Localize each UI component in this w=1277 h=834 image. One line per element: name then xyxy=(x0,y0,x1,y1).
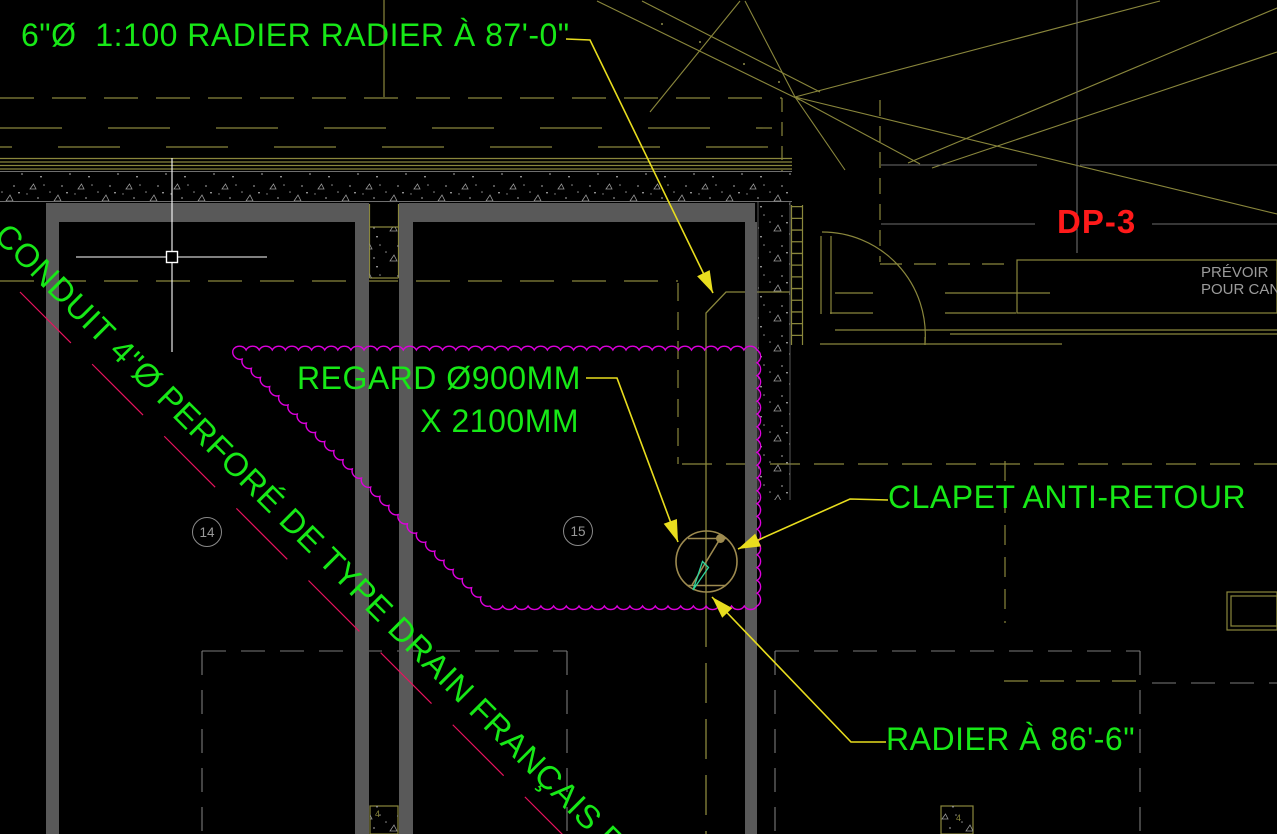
pickbox-icon xyxy=(167,252,178,263)
door-swing-arc xyxy=(822,232,925,343)
valve-hinge-dot xyxy=(716,534,725,543)
leader-radier xyxy=(712,597,886,742)
fixture-outline xyxy=(1227,592,1277,630)
grid-bubble-14[interactable]: 14 xyxy=(192,517,222,547)
wall-fills xyxy=(46,203,757,834)
radier-annotation[interactable]: RADIER À 86'-6" xyxy=(886,720,1135,758)
grid-bubble-15-label: 15 xyxy=(570,524,585,539)
regard-annotation[interactable]: REGARD Ø900MMX 2100MM xyxy=(297,357,579,443)
clapet-annotation[interactable]: CLAPET ANTI-RETOUR xyxy=(888,478,1246,516)
leader-lines[interactable] xyxy=(566,39,888,742)
leader-regard xyxy=(586,378,678,542)
grid-bubble-15[interactable]: 15 xyxy=(563,516,593,546)
grid-bubble-14-label: 14 xyxy=(199,525,214,540)
prevoir-note: PRÉVOIRPOUR CAN xyxy=(1201,264,1277,298)
detail-tag-left: 4 xyxy=(375,810,380,819)
pipe-invert-annotation[interactable]: 6"Ø 1:100 RADIER RADIER À 87'-0" xyxy=(21,16,570,54)
regard-line1: REGARD Ø900MM xyxy=(297,360,581,396)
prevoir-line1: PRÉVOIR xyxy=(1201,264,1269,281)
regard-line2: X 2100MM xyxy=(420,403,579,439)
drain-tag-dp3[interactable]: DP-3 xyxy=(1057,203,1136,241)
cad-viewport[interactable]: 6"Ø 1:100 RADIER RADIER À 87'-0" CONDUIT… xyxy=(0,0,1277,834)
prevoir-line2: POUR CAN xyxy=(1201,281,1277,298)
detail-tag-right: 4 xyxy=(956,814,961,823)
